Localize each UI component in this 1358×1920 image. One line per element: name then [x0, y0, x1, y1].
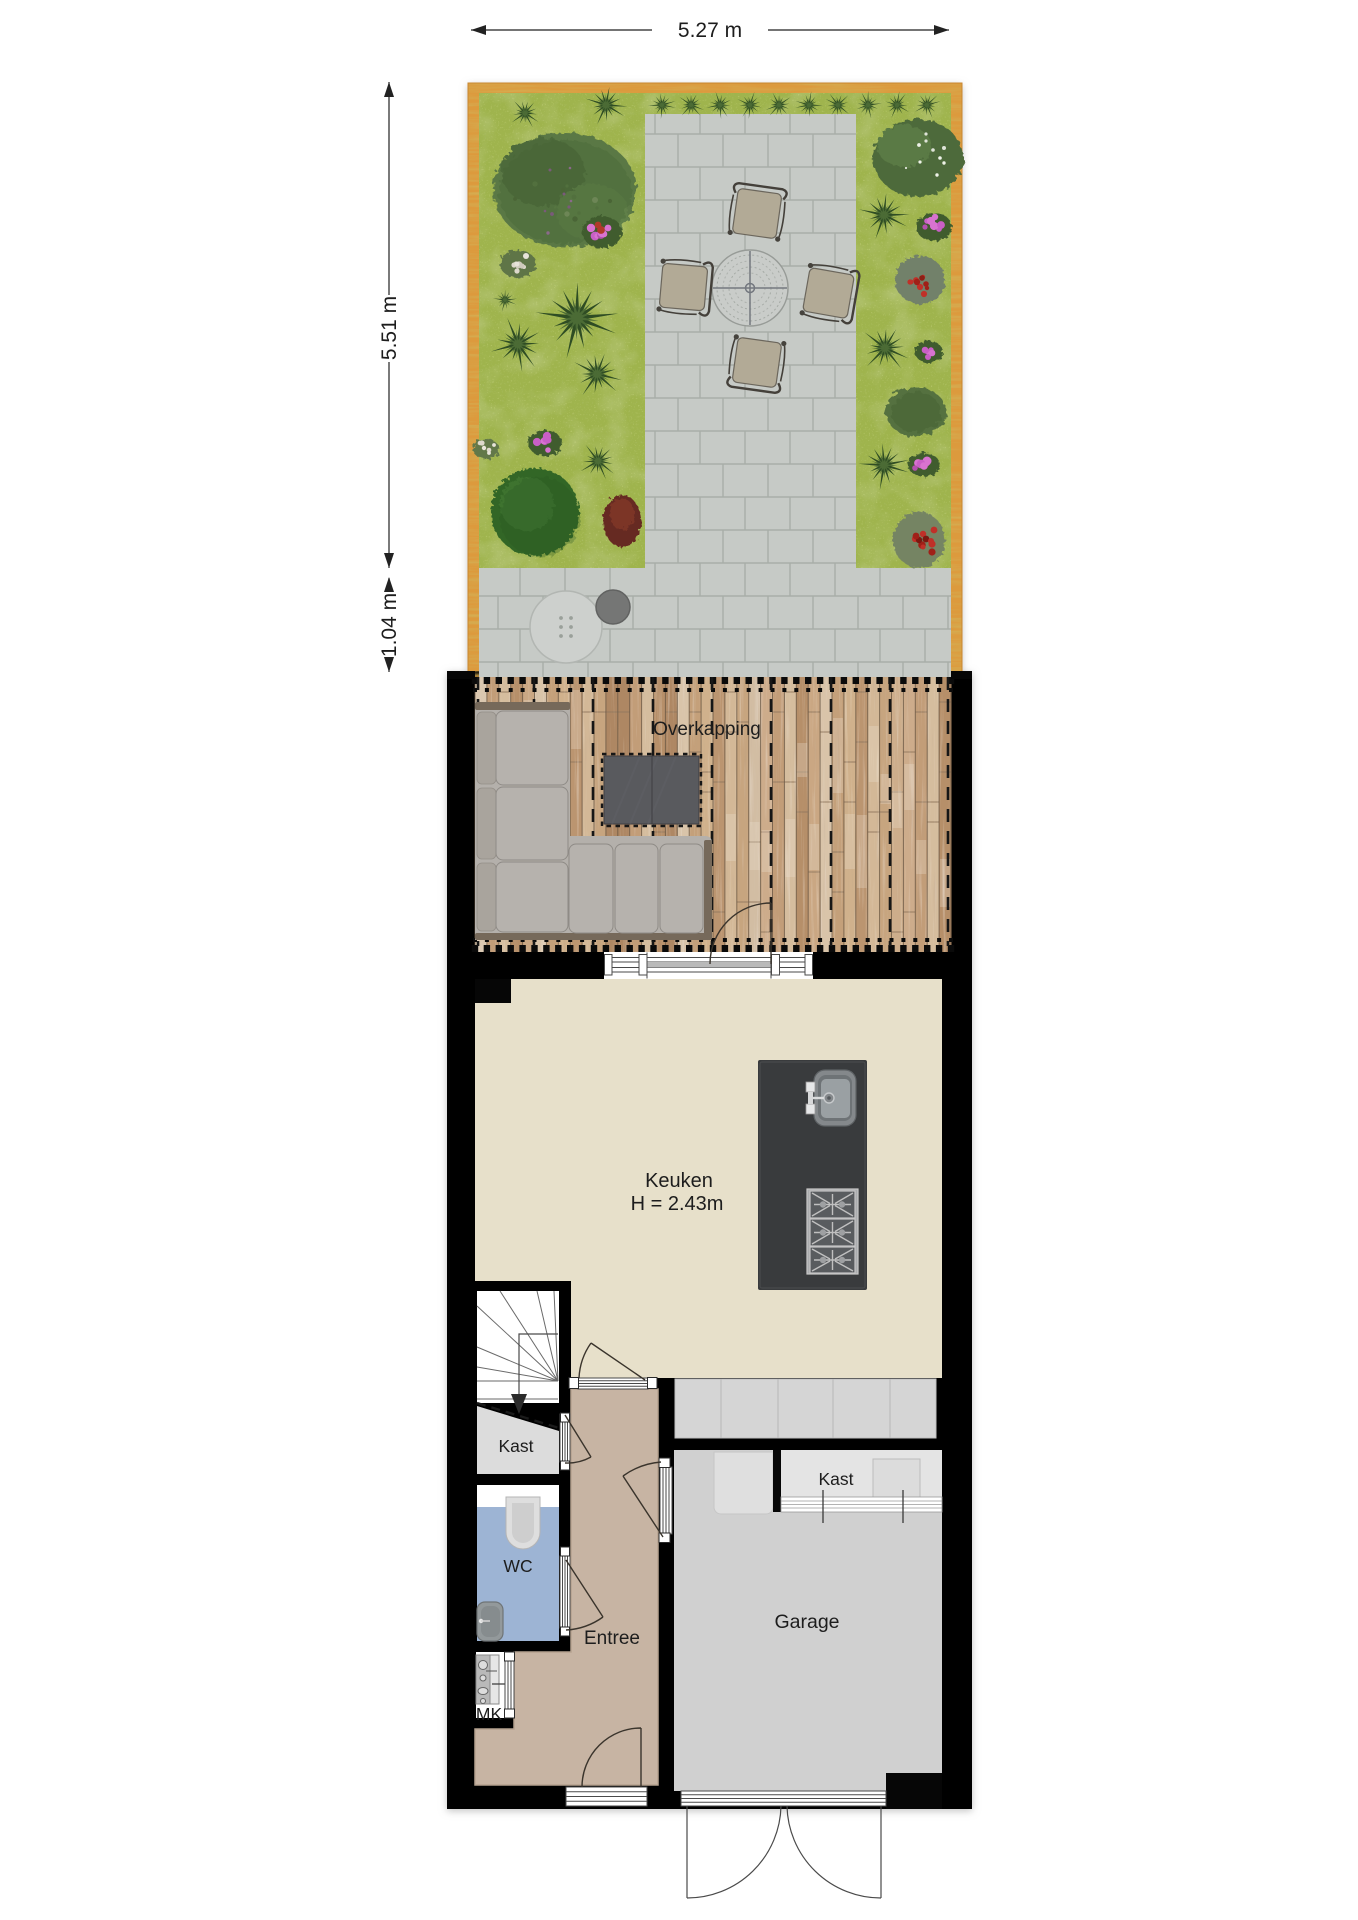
svg-text:1.04 m: 1.04 m: [378, 593, 401, 657]
svg-text:Kast: Kast: [818, 1469, 853, 1489]
svg-text:MK: MK: [476, 1704, 503, 1724]
svg-text:Kast: Kast: [498, 1436, 533, 1456]
svg-text:H = 2.43m: H = 2.43m: [631, 1193, 724, 1215]
svg-text:5.51 m: 5.51 m: [378, 296, 401, 360]
svg-text:Keuken: Keuken: [645, 1170, 713, 1192]
svg-text:WC: WC: [503, 1556, 532, 1576]
svg-text:Garage: Garage: [774, 1611, 839, 1633]
svg-text:Entree: Entree: [584, 1628, 640, 1649]
svg-text:Overkapping: Overkapping: [653, 719, 761, 740]
svg-text:5.27 m: 5.27 m: [678, 19, 742, 42]
